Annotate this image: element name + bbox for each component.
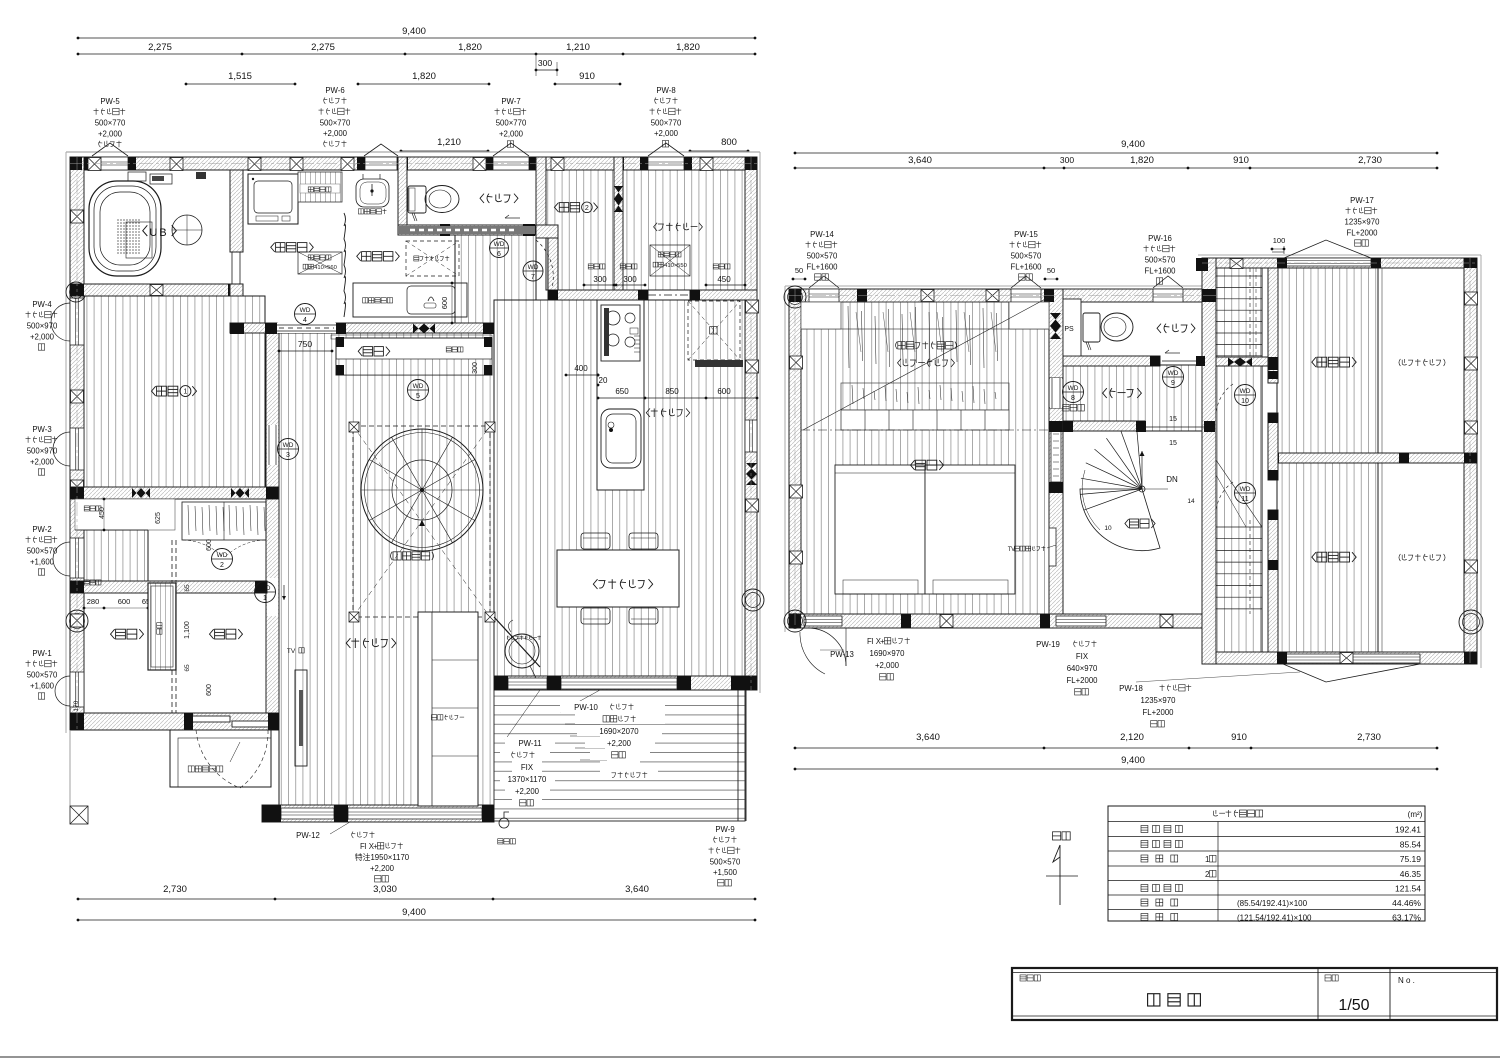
svg-text:600: 600: [440, 297, 449, 310]
svg-text:+2,000: +2,000: [654, 129, 679, 138]
svg-text:450: 450: [717, 275, 731, 284]
svg-text:1235×970: 1235×970: [1141, 696, 1177, 705]
svg-text:PW-18: PW-18: [1119, 684, 1143, 693]
svg-text:500×970: 500×970: [27, 322, 58, 331]
svg-text:910: 910: [1233, 155, 1249, 166]
svg-text:+1,500: +1,500: [713, 868, 738, 877]
svg-text:PW-8: PW-8: [656, 86, 675, 95]
svg-text:+1,600: +1,600: [30, 557, 55, 566]
svg-text:500×570: 500×570: [27, 671, 58, 680]
svg-text:PW-19: PW-19: [1036, 640, 1060, 649]
svg-text:0: 0: [99, 507, 106, 511]
svg-text:9: 9: [1171, 380, 1175, 387]
svg-text:WD: WD: [1240, 388, 1251, 395]
svg-text:9,400: 9,400: [1121, 139, 1145, 150]
svg-text:7: 7: [531, 274, 535, 281]
svg-text:750: 750: [298, 339, 312, 349]
svg-text:(121.54/192.41)×100: (121.54/192.41)×100: [1237, 914, 1312, 923]
svg-text:1690×2070: 1690×2070: [599, 727, 639, 736]
svg-text:I: I: [871, 637, 873, 646]
svg-text:PW-7: PW-7: [501, 97, 520, 106]
svg-text:WD: WD: [494, 241, 505, 248]
svg-text:+2,200: +2,200: [370, 864, 395, 873]
svg-text:300: 300: [623, 275, 637, 284]
svg-text:2,275: 2,275: [311, 42, 335, 53]
svg-text:2: 2: [585, 204, 589, 212]
svg-text:11: 11: [1241, 496, 1248, 503]
svg-text:600: 600: [717, 387, 731, 396]
svg-text:9,400: 9,400: [1121, 755, 1145, 766]
svg-text:192.41: 192.41: [1395, 825, 1421, 835]
svg-text:PW-3: PW-3: [32, 425, 51, 434]
svg-text:PW-13: PW-13: [830, 650, 854, 659]
svg-text:63.17%: 63.17%: [1392, 913, 1421, 923]
svg-text:500×770: 500×770: [496, 119, 527, 128]
svg-text:85.54: 85.54: [1400, 840, 1422, 850]
svg-text:50: 50: [1047, 266, 1055, 275]
svg-text:1,210: 1,210: [437, 137, 461, 148]
svg-text:15: 15: [1169, 416, 1177, 423]
svg-text:PW-14: PW-14: [810, 230, 834, 239]
svg-text:300: 300: [1060, 155, 1074, 165]
svg-text:46.35: 46.35: [1400, 869, 1422, 879]
svg-text:0: 0: [206, 539, 213, 543]
svg-text:TV: TV: [287, 648, 296, 655]
svg-text:PW-12: PW-12: [296, 831, 320, 840]
svg-text:1370×1170: 1370×1170: [508, 775, 547, 784]
svg-text:1,820: 1,820: [412, 71, 436, 82]
svg-text:PW-5: PW-5: [100, 97, 120, 106]
svg-text:300: 300: [593, 275, 607, 284]
svg-text:850: 850: [665, 387, 679, 396]
svg-text:5: 5: [184, 584, 191, 588]
svg-text:9,400: 9,400: [402, 907, 426, 918]
svg-text:500×570: 500×570: [1145, 256, 1176, 265]
svg-text:500×770: 500×770: [651, 118, 682, 127]
svg-text:+2,000: +2,000: [875, 661, 900, 670]
svg-text:WD: WD: [528, 264, 539, 271]
svg-text:500×570: 500×570: [27, 547, 58, 556]
svg-text:+2,000: +2,000: [323, 129, 348, 138]
svg-text:5: 5: [416, 393, 420, 400]
svg-text:+2,000: +2,000: [499, 129, 524, 138]
svg-text:0: 0: [184, 621, 191, 625]
svg-text:FL+1600: FL+1600: [1011, 262, 1043, 271]
svg-text:640×970: 640×970: [1067, 664, 1098, 673]
svg-text:PW-9: PW-9: [715, 825, 734, 834]
svg-text:PW-1: PW-1: [32, 649, 51, 658]
svg-text:500×770: 500×770: [320, 118, 351, 127]
svg-text:+2,000: +2,000: [98, 129, 123, 138]
svg-text:特注1950×1170: 特注1950×1170: [355, 852, 410, 862]
svg-text:2: 2: [220, 562, 224, 569]
svg-text:FL+1600: FL+1600: [1145, 266, 1177, 275]
svg-text:FL+2000: FL+2000: [1143, 708, 1175, 717]
svg-text:75.19: 75.19: [1400, 854, 1422, 864]
svg-text:0: 0: [684, 263, 687, 269]
svg-text:PW-6: PW-6: [325, 86, 344, 95]
svg-text:WD: WD: [283, 442, 294, 449]
svg-text:FL+1600: FL+1600: [807, 262, 839, 271]
svg-text:(85.54/192.41)×100: (85.54/192.41)×100: [1237, 899, 1308, 908]
svg-text:1,515: 1,515: [228, 71, 252, 82]
svg-text:DN: DN: [1166, 475, 1178, 484]
svg-text:10: 10: [1241, 398, 1249, 405]
svg-text:2,120: 2,120: [1120, 732, 1144, 743]
svg-text:PW-16: PW-16: [1148, 234, 1172, 243]
svg-text:910: 910: [1231, 732, 1247, 743]
svg-text:FIX: FIX: [1076, 652, 1089, 661]
svg-text:(m²): (m²): [1408, 810, 1423, 819]
svg-text:44.46%: 44.46%: [1392, 898, 1421, 908]
svg-text:+2,000: +2,000: [30, 457, 55, 466]
svg-text:WD: WD: [1168, 370, 1179, 377]
svg-text:+1,600: +1,600: [30, 681, 55, 690]
svg-text:280: 280: [87, 597, 100, 606]
svg-text:WD: WD: [413, 383, 424, 390]
svg-text:0: 0: [334, 265, 337, 271]
svg-text:3,030: 3,030: [373, 884, 397, 895]
svg-text:1,820: 1,820: [1130, 155, 1154, 166]
svg-text:+2,200: +2,200: [607, 739, 632, 748]
svg-text:2,730: 2,730: [163, 884, 187, 895]
svg-text:FL+2000: FL+2000: [1347, 228, 1379, 237]
svg-text:15: 15: [1169, 440, 1177, 447]
svg-text:WD: WD: [1240, 486, 1251, 493]
svg-text:I: I: [364, 842, 366, 851]
svg-text:PW-15: PW-15: [1014, 230, 1038, 239]
svg-text:1: 1: [183, 387, 187, 396]
svg-text:14: 14: [1187, 498, 1195, 505]
svg-text:1235×970: 1235×970: [1345, 218, 1381, 227]
svg-text:8: 8: [1071, 395, 1075, 402]
svg-text:800: 800: [721, 137, 737, 148]
svg-text:5: 5: [155, 512, 162, 516]
svg-text:910: 910: [579, 71, 595, 82]
svg-text:300: 300: [538, 58, 552, 68]
svg-text:5: 5: [184, 664, 191, 668]
svg-text:1: 1: [263, 595, 267, 602]
svg-text:UB: UB: [149, 227, 168, 239]
svg-text:100: 100: [1273, 236, 1286, 245]
svg-text:PW-2: PW-2: [32, 525, 51, 534]
svg-text:1,210: 1,210: [566, 42, 590, 53]
svg-text:WD: WD: [217, 552, 228, 559]
svg-text:FL+2000: FL+2000: [1067, 676, 1099, 685]
svg-text:0: 0: [73, 700, 80, 704]
svg-text:600: 600: [118, 597, 131, 606]
svg-text:+2,200: +2,200: [515, 787, 540, 796]
svg-text:PW-4: PW-4: [32, 300, 52, 309]
svg-text:500×570: 500×570: [807, 252, 838, 261]
svg-text:20: 20: [599, 376, 608, 385]
svg-text:PW-17: PW-17: [1350, 196, 1374, 205]
svg-text:+2,000: +2,000: [30, 332, 55, 341]
svg-text:650: 650: [615, 387, 629, 396]
svg-text:N o .: N o .: [1398, 976, 1415, 985]
svg-text:1690×970: 1690×970: [870, 649, 906, 658]
svg-text:3,640: 3,640: [625, 884, 649, 895]
svg-text:PS: PS: [1064, 326, 1074, 333]
svg-text:3: 3: [286, 452, 290, 459]
svg-text:121.54: 121.54: [1395, 884, 1421, 894]
svg-text:50: 50: [795, 266, 803, 275]
svg-text:WD: WD: [260, 585, 271, 592]
svg-text:9,400: 9,400: [402, 26, 426, 37]
svg-text:PW-11: PW-11: [518, 739, 541, 748]
svg-text:1,820: 1,820: [458, 42, 482, 53]
svg-text:FIX: FIX: [521, 763, 534, 772]
svg-text:WD: WD: [300, 307, 311, 314]
svg-text:4: 4: [303, 317, 307, 324]
svg-text:500×570: 500×570: [1011, 252, 1042, 261]
svg-text:3,640: 3,640: [916, 732, 940, 743]
svg-text:500×770: 500×770: [95, 119, 126, 128]
svg-text:0: 0: [206, 684, 213, 688]
svg-text:400: 400: [574, 364, 588, 373]
svg-text:1,820: 1,820: [676, 42, 700, 53]
svg-text:2,730: 2,730: [1357, 732, 1381, 743]
svg-text:6: 6: [497, 251, 501, 258]
svg-text:3,640: 3,640: [908, 155, 932, 166]
svg-text:1/50: 1/50: [1338, 997, 1369, 1014]
svg-text:2,730: 2,730: [1358, 155, 1382, 166]
svg-text:500×570: 500×570: [710, 857, 741, 866]
svg-text:2,275: 2,275: [148, 42, 172, 53]
svg-text:10: 10: [1104, 525, 1112, 532]
svg-text:PW-10: PW-10: [574, 703, 598, 712]
svg-text:WD: WD: [1068, 385, 1079, 392]
svg-text:0: 0: [472, 362, 479, 366]
